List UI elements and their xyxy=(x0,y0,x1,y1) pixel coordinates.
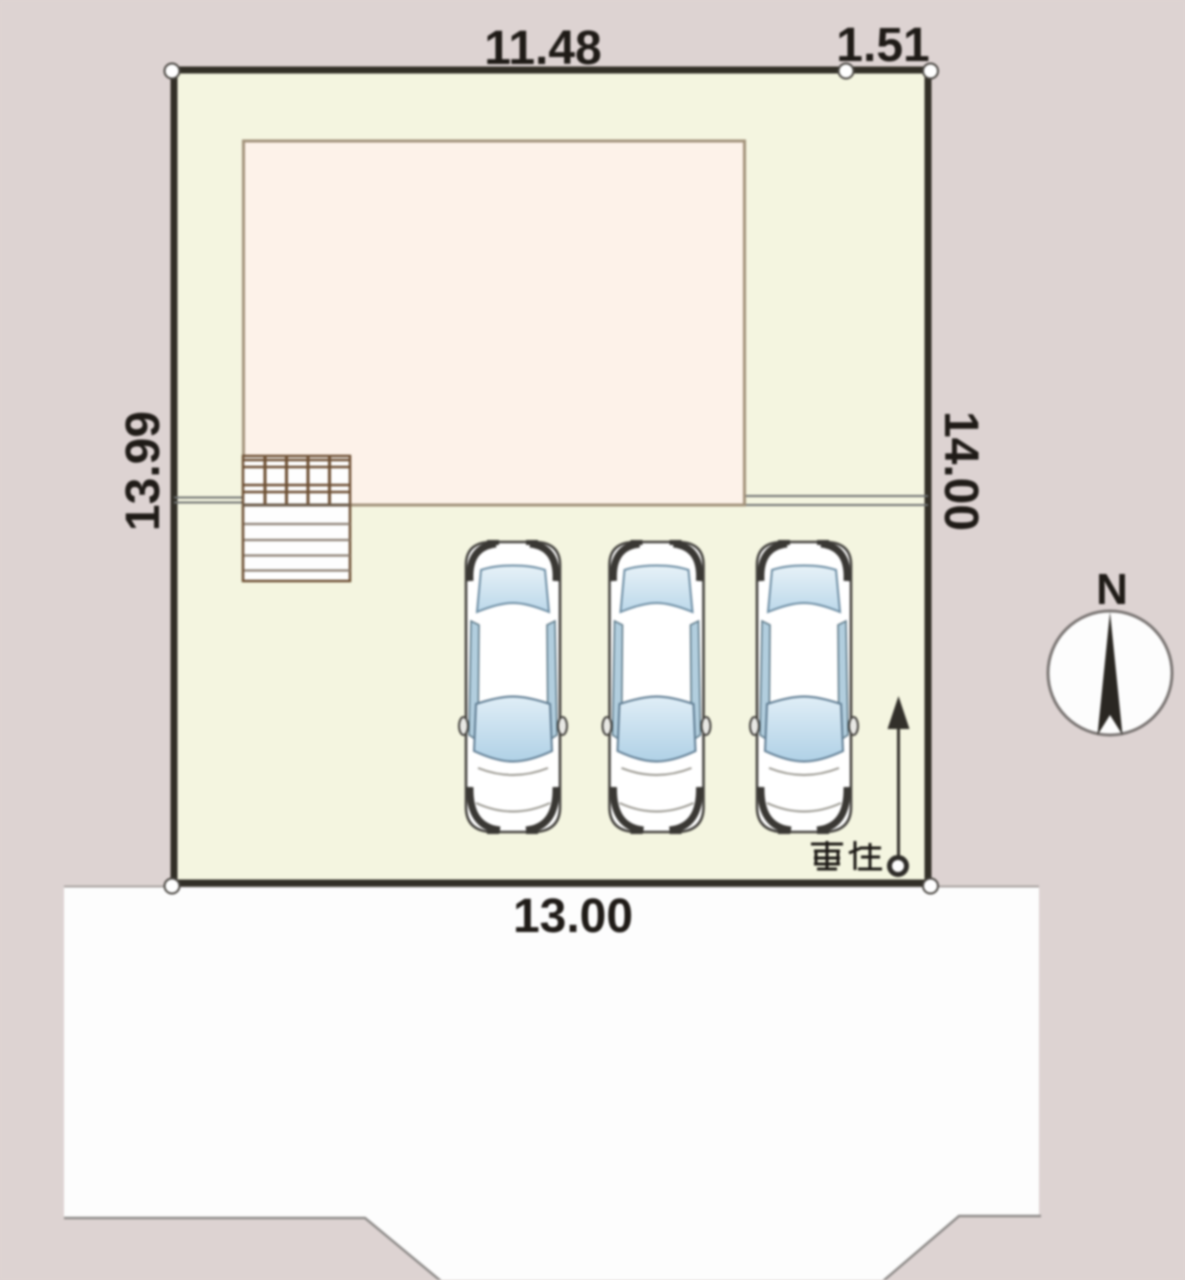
svg-text:1.51: 1.51 xyxy=(836,19,929,72)
svg-text:14.00: 14.00 xyxy=(934,411,987,531)
svg-text:N: N xyxy=(1096,565,1128,614)
svg-text:13.00: 13.00 xyxy=(513,890,633,943)
svg-text:11.48: 11.48 xyxy=(484,22,601,75)
svg-text:13.99: 13.99 xyxy=(117,411,170,531)
